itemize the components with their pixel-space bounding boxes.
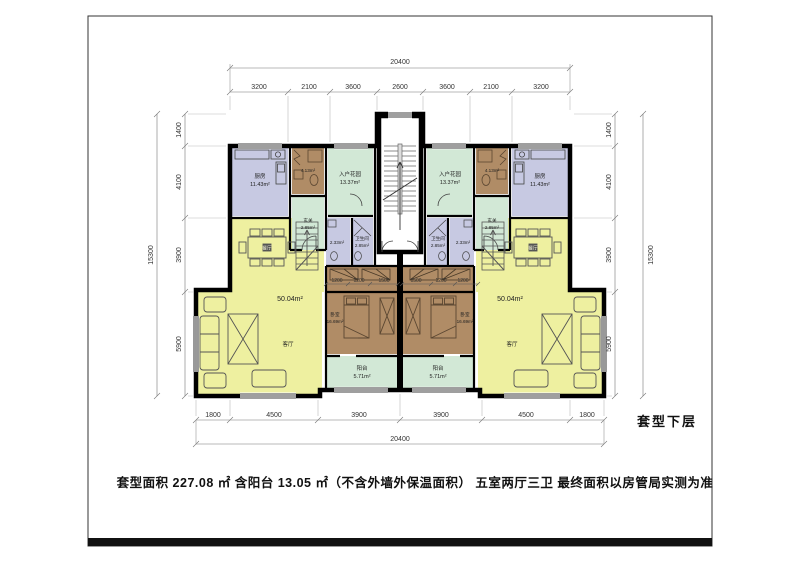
dim-top-6: 2100	[483, 84, 499, 91]
dim-top-3: 3600	[345, 84, 361, 91]
dim-int-l3: 1500	[378, 278, 389, 284]
balcony-name-r: 阳台	[432, 364, 444, 372]
living-dining-area-r: 50.04m²	[497, 296, 523, 303]
floor-level-label: 套型下层	[636, 414, 697, 429]
dim-int-r3: 1200	[457, 278, 468, 284]
dim-top-7: 3200	[533, 84, 549, 91]
kitchen-area-r: 11.43m²	[530, 182, 550, 188]
dim-left-3: 3900	[176, 247, 183, 263]
wc-small-area-r: 2.33m²	[456, 240, 471, 245]
floor-plan-canvas: 20400 3200 2100 3600 2600 3600 2100 3200…	[0, 0, 800, 565]
dim-top-4: 2600	[392, 84, 408, 91]
foyer-area-r: 2.85m²	[485, 225, 500, 230]
dim-right-2: 4100	[606, 174, 613, 190]
kitchen-name: 厨房	[254, 172, 266, 180]
living-name: 客厅	[282, 340, 294, 348]
dim-bot-1: 1800	[205, 412, 221, 419]
wc-small-area: 2.33m²	[330, 240, 345, 245]
dim-int-r1: 1500	[410, 278, 421, 284]
balcony-name: 阳台	[356, 364, 368, 372]
central-staircase	[379, 112, 421, 253]
left-unit	[193, 114, 402, 400]
foyer-area: 2.85m²	[301, 225, 316, 230]
dim-bot-3: 3900	[351, 412, 367, 419]
dim-right-1: 1400	[606, 122, 613, 138]
wc-area-r: 2.85m²	[431, 243, 446, 248]
wc-name-r: 卫生间	[431, 235, 445, 242]
balcony-area-r: 5.71m²	[429, 374, 446, 380]
living-dining-area: 50.04m²	[277, 296, 303, 303]
entry-garden-name-r: 入户花园	[439, 170, 462, 178]
wc-area: 2.85m²	[355, 243, 370, 248]
dim-right-3: 3900	[606, 247, 613, 263]
bath-upper-area: 4.13m²	[301, 168, 316, 173]
balcony-area: 5.71m²	[353, 374, 370, 380]
dim-bot-4: 3900	[433, 412, 449, 419]
kitchen-area: 11.43m²	[250, 182, 270, 188]
wc-name: 卫生间	[355, 235, 369, 242]
living-name-r: 客厅	[506, 340, 518, 348]
bedroom-area-r: 16.69m²	[457, 319, 474, 324]
dining-name-r: 餐厅	[528, 245, 538, 252]
dim-right-total: 15300	[648, 245, 655, 265]
entry-garden-name: 入户花园	[339, 170, 362, 178]
dim-bottom-total: 20400	[390, 436, 410, 443]
dim-left-4: 5900	[176, 336, 183, 352]
bedroom-area: 16.69m²	[327, 319, 344, 324]
dim-int-l1: 1200	[331, 278, 342, 284]
right-unit	[398, 114, 607, 400]
dim-bot-2: 4500	[266, 412, 282, 419]
dim-int-l2: 1200	[353, 278, 364, 284]
drawing-sheet: 20400 3200 2100 3600 2600 3600 2100 3200…	[0, 0, 800, 565]
area-caption: 套型面积 227.08 ㎡ 含阳台 13.05 ㎡（不含外墙外保温面积） 五室两…	[116, 475, 714, 490]
dim-top-1: 3200	[251, 84, 267, 91]
title-block-bar	[88, 538, 712, 546]
dim-int-r2: 1200	[435, 278, 446, 284]
foyer-name: 玄关	[303, 217, 313, 224]
dim-right-4: 5900	[606, 336, 613, 352]
bath-upper-area-r: 4.13m²	[485, 168, 500, 173]
bedroom-name: 卧室	[330, 311, 340, 318]
dim-bot-6: 1800	[579, 412, 595, 419]
dim-left-2: 4100	[176, 174, 183, 190]
dim-bot-5: 4500	[518, 412, 534, 419]
dim-top-5: 3600	[439, 84, 455, 91]
dim-left-1: 1400	[176, 122, 183, 138]
entry-garden-area-r: 13.37m²	[440, 180, 460, 186]
kitchen-name-r: 厨房	[534, 172, 546, 180]
dining-name: 餐厅	[262, 245, 272, 252]
dim-top-2: 2100	[301, 84, 317, 91]
foyer-name-r: 玄关	[487, 217, 497, 224]
entry-garden-area: 13.37m²	[340, 180, 360, 186]
dim-top-total: 20400	[390, 59, 410, 66]
dim-left-total: 15300	[148, 245, 155, 265]
bedroom-name-r: 卧室	[460, 311, 470, 318]
